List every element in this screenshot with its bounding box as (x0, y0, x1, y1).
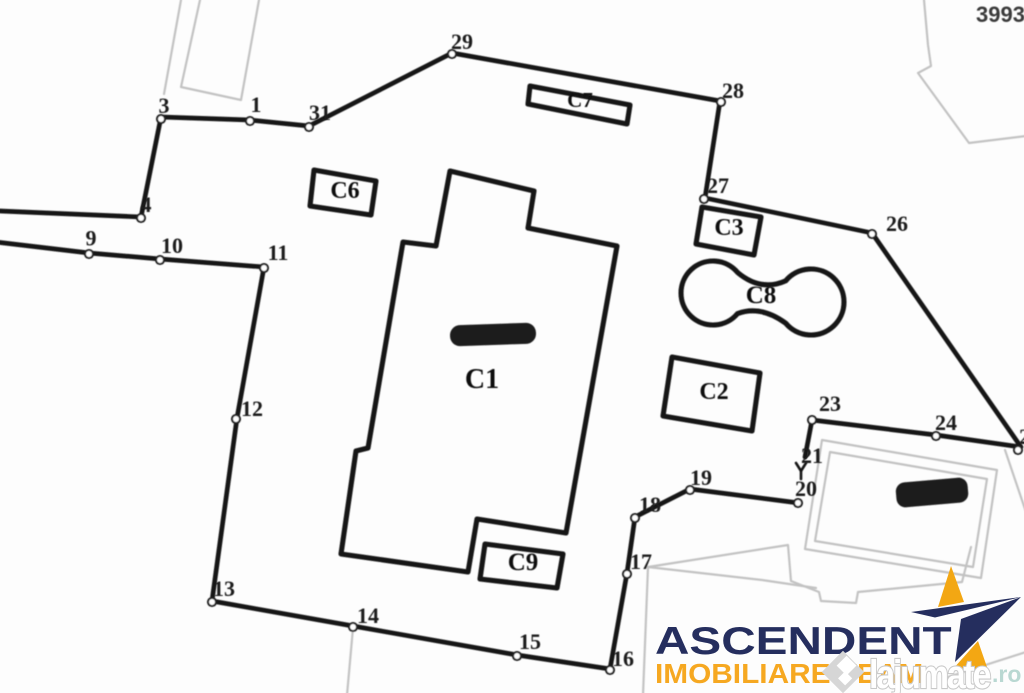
svg-text:31: 31 (309, 100, 331, 125)
svg-text:29: 29 (451, 29, 473, 54)
svg-text:39934: 39934 (976, 2, 1024, 27)
svg-text:20: 20 (795, 476, 817, 501)
svg-text:24: 24 (935, 410, 957, 435)
svg-text:13: 13 (213, 576, 235, 601)
svg-text:C1: C1 (465, 364, 499, 395)
svg-text:25: 25 (1019, 424, 1024, 449)
svg-text:27: 27 (707, 173, 729, 198)
svg-text:10: 10 (161, 233, 183, 258)
svg-text:.ro: .ro (992, 661, 1021, 687)
svg-text:4: 4 (141, 192, 152, 217)
svg-text:21: 21 (801, 443, 823, 468)
svg-text:C3: C3 (714, 215, 743, 241)
svg-text:1: 1 (251, 92, 262, 117)
svg-text:28: 28 (722, 78, 744, 103)
svg-text:3: 3 (159, 93, 170, 118)
svg-text:17: 17 (630, 549, 652, 574)
svg-text:26: 26 (886, 211, 908, 236)
svg-text:23: 23 (819, 391, 841, 416)
svg-text:C7: C7 (567, 88, 593, 112)
svg-text:lajumate: lajumate (869, 651, 991, 693)
svg-text:15: 15 (519, 629, 541, 654)
svg-text:11: 11 (268, 240, 289, 265)
svg-text:12: 12 (241, 396, 263, 421)
svg-text:C8: C8 (746, 282, 777, 309)
svg-text:18: 18 (639, 492, 661, 517)
svg-text:C6: C6 (330, 178, 359, 204)
svg-text:16: 16 (612, 646, 634, 671)
svg-text:19: 19 (690, 465, 712, 490)
svg-text:9: 9 (86, 226, 97, 251)
svg-text:C2: C2 (699, 379, 728, 405)
svg-text:14: 14 (357, 603, 379, 628)
svg-text:C9: C9 (508, 549, 539, 576)
